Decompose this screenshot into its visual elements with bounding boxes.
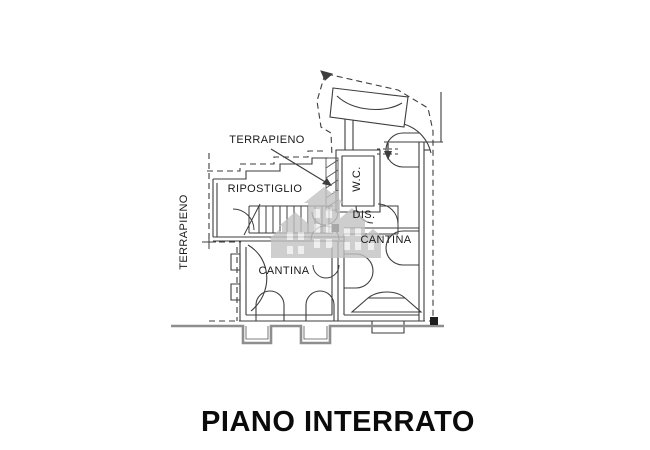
- label-ripostiglio: RIPOSTIGLIO: [228, 183, 303, 195]
- light-well-trapezoid: [352, 298, 421, 312]
- ground-retaining-line: [171, 326, 444, 343]
- window-arch: [256, 291, 284, 321]
- door-leaf: [386, 133, 419, 167]
- label-cantina-lower: CANTINA: [258, 265, 309, 277]
- label-cantina-upper: CANTINA: [360, 234, 411, 246]
- wall-pilaster: [231, 254, 240, 270]
- page-title: PIANO INTERRATO: [0, 406, 650, 439]
- label-terrapieno-top: TERRAPIENO: [229, 134, 305, 146]
- corner-marker: [430, 317, 438, 325]
- window-arch: [306, 291, 334, 321]
- door-leaf: [344, 254, 373, 288]
- stair-door-arc: [233, 209, 254, 230]
- cantina-door-swing: [248, 245, 267, 311]
- boundary-corner-arrow-icon: [321, 71, 332, 80]
- label-terrapieno-left: TERRAPIENO: [178, 194, 190, 270]
- wall-pilaster: [231, 284, 240, 300]
- top-vault-structure: [330, 88, 431, 153]
- label-dis: DIS.: [353, 209, 376, 221]
- terrapieno-arrow-icon: [322, 178, 332, 186]
- watermark-houses-logo: [269, 187, 384, 258]
- dis-door-arc: [378, 204, 398, 224]
- stair-break-line: [244, 204, 260, 235]
- floor-plan-drawing: TERRAPIENO RIPOSTIGLIO W.C. DIS. CANTINA…: [0, 0, 650, 450]
- entry-arrow-icon: [384, 151, 392, 160]
- floor-plan-page: TERRAPIENO RIPOSTIGLIO W.C. DIS. CANTINA…: [0, 0, 650, 450]
- label-wc: W.C.: [351, 166, 363, 191]
- window-well-outlines: [246, 326, 327, 339]
